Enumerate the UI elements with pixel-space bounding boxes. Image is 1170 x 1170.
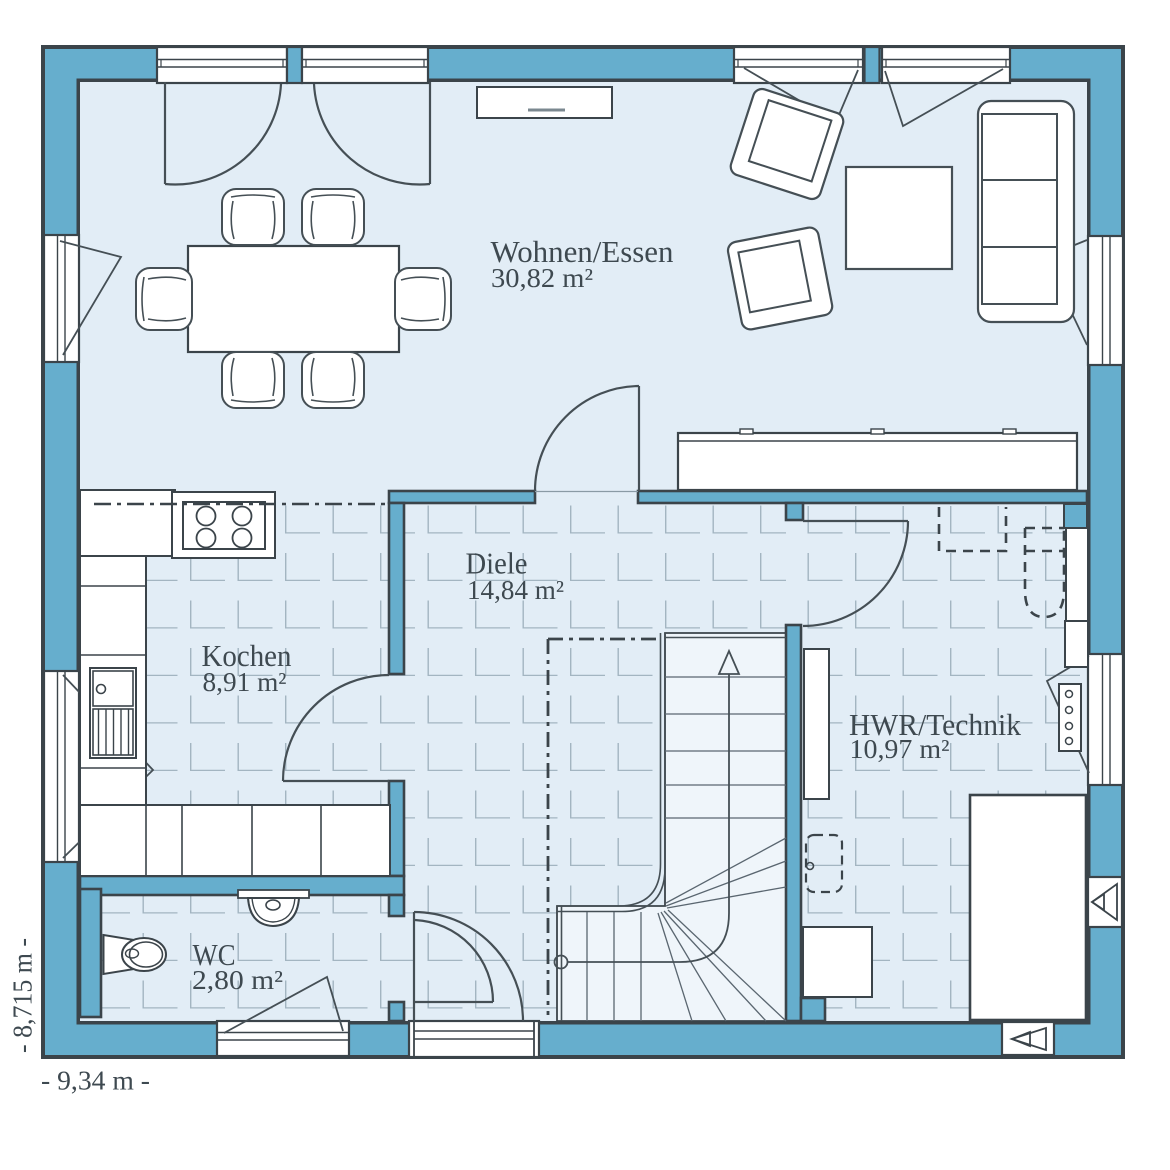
svg-text:30,82 m²: 30,82 m²: [491, 263, 593, 293]
svg-text:2,80 m²: 2,80 m²: [192, 965, 283, 995]
svg-text:- 8,715 m -: - 8,715 m -: [8, 938, 38, 1053]
svg-text:- 9,34 m -: - 9,34 m -: [41, 1066, 150, 1096]
svg-text:10,97 m²: 10,97 m²: [850, 734, 950, 764]
svg-text:14,84 m²: 14,84 m²: [467, 575, 564, 605]
svg-text:8,91 m²: 8,91 m²: [203, 667, 287, 697]
